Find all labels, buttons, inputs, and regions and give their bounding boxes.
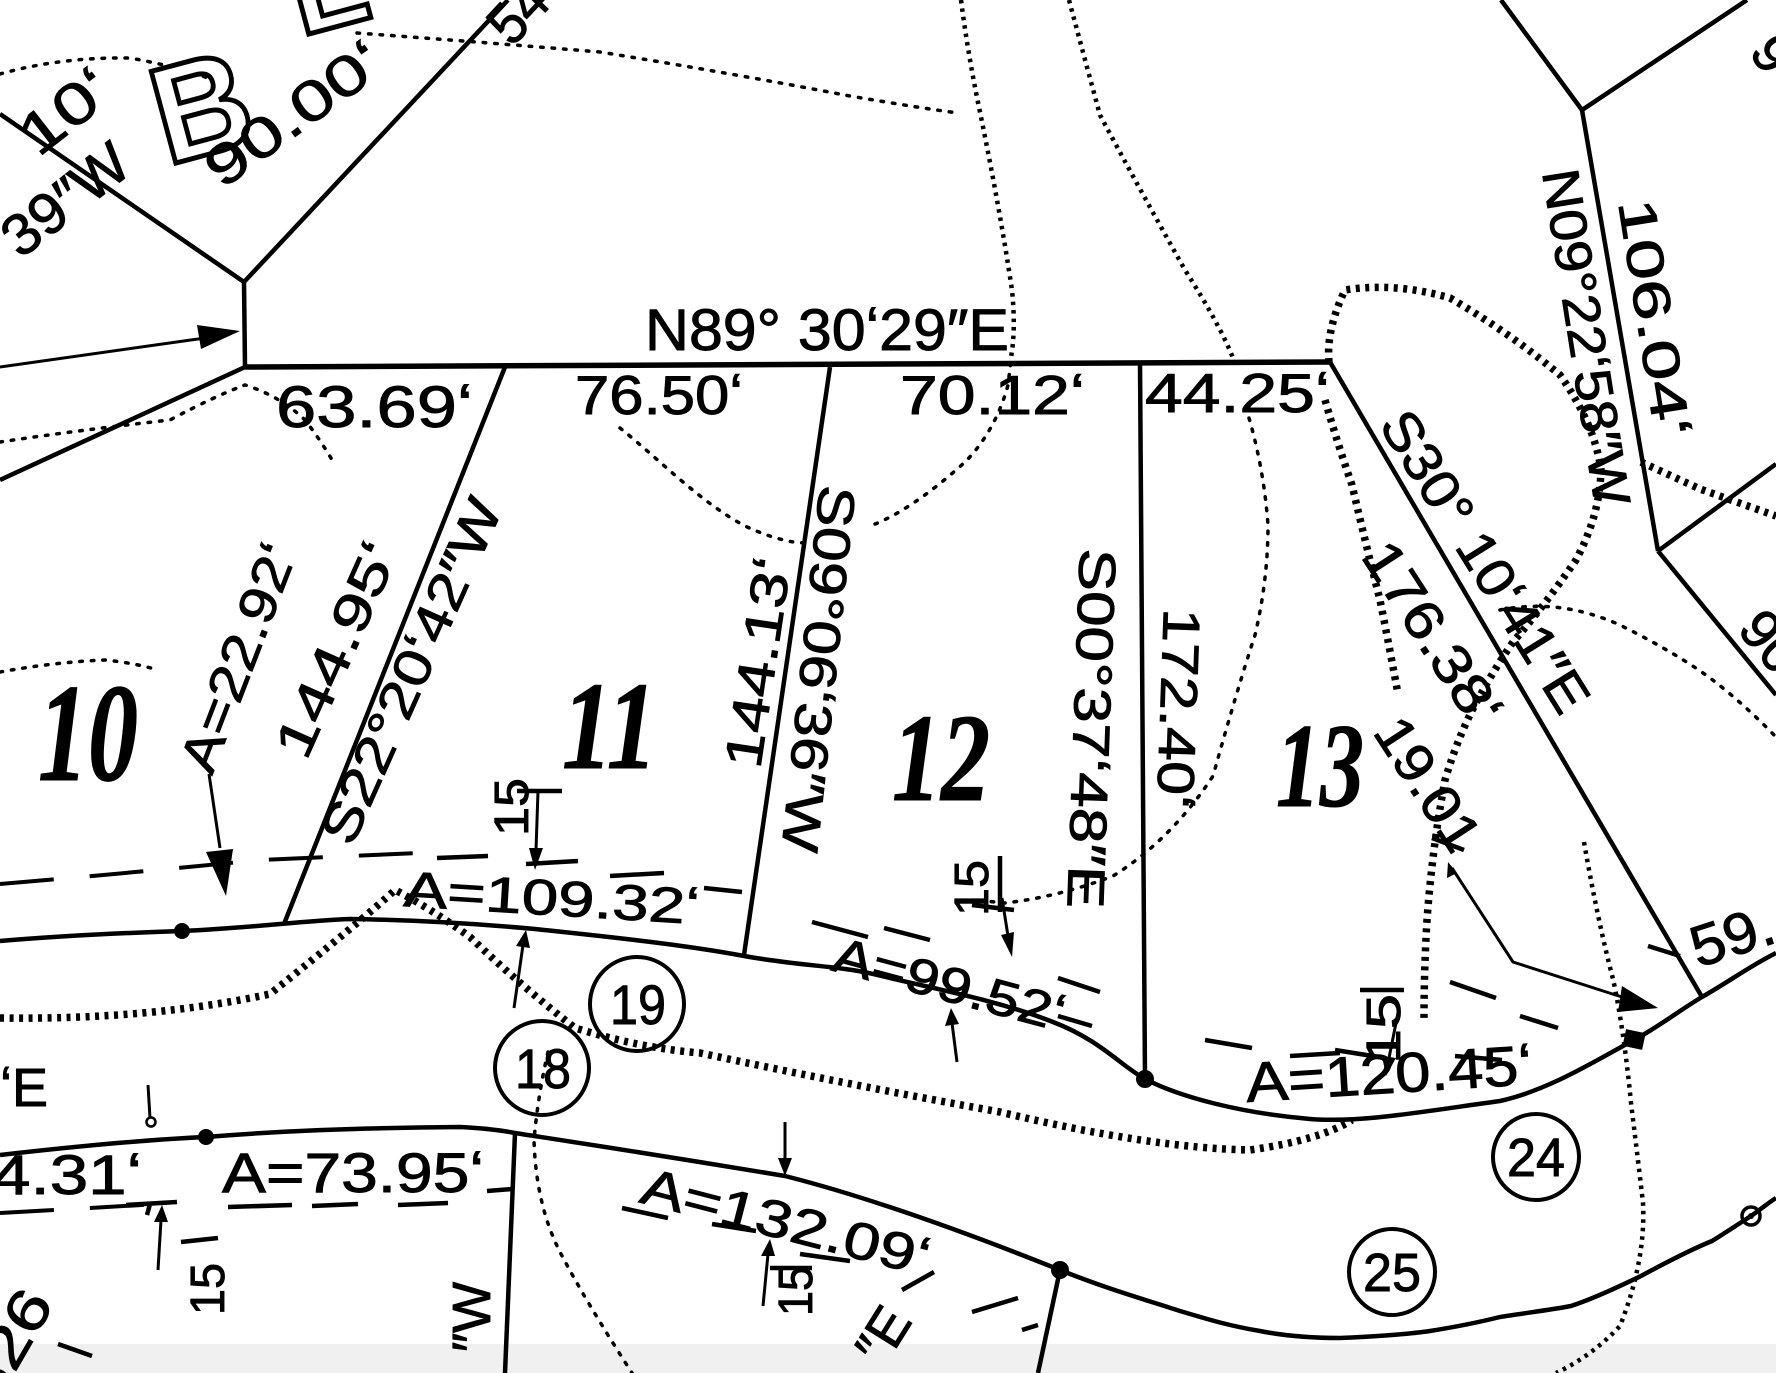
svg-text:A=73.95ʻ: A=73.95ʻ bbox=[222, 1141, 484, 1204]
svg-text:15: 15 bbox=[182, 1263, 235, 1315]
svg-text:13: 13 bbox=[1276, 699, 1364, 832]
svg-text:4.31ʻ: 4.31ʻ bbox=[0, 1143, 142, 1206]
svg-text:15: 15 bbox=[946, 860, 999, 916]
svg-text:44.25ʻ: 44.25ʻ bbox=[1145, 362, 1330, 424]
svg-text:15: 15 bbox=[486, 778, 539, 836]
svg-text:25: 25 bbox=[1363, 1243, 1421, 1303]
svg-text:63.69ʻ: 63.69ʻ bbox=[276, 375, 473, 440]
svg-text:15: 15 bbox=[1358, 994, 1411, 1064]
svg-text:19: 19 bbox=[610, 973, 666, 1036]
svg-text:76.50ʻ: 76.50ʻ bbox=[575, 364, 743, 426]
svg-text:18: 18 bbox=[515, 1037, 571, 1100]
svg-text:70.12ʻ: 70.12ʻ bbox=[900, 364, 1085, 426]
svg-text:″W: ″W bbox=[442, 1282, 502, 1352]
svg-text:10: 10 bbox=[38, 656, 138, 811]
svg-text:24: 24 bbox=[1507, 1128, 1565, 1188]
svg-text:15: 15 bbox=[770, 1266, 823, 1316]
svg-text:172.40ʻ: 172.40ʻ bbox=[1145, 608, 1210, 810]
svg-text:ʻE: ʻE bbox=[0, 1058, 48, 1118]
svg-text:12: 12 bbox=[892, 690, 990, 828]
svg-text:11: 11 bbox=[562, 658, 657, 796]
svg-text:N89° 30ʻ29″E: N89° 30ʻ29″E bbox=[645, 298, 1009, 363]
